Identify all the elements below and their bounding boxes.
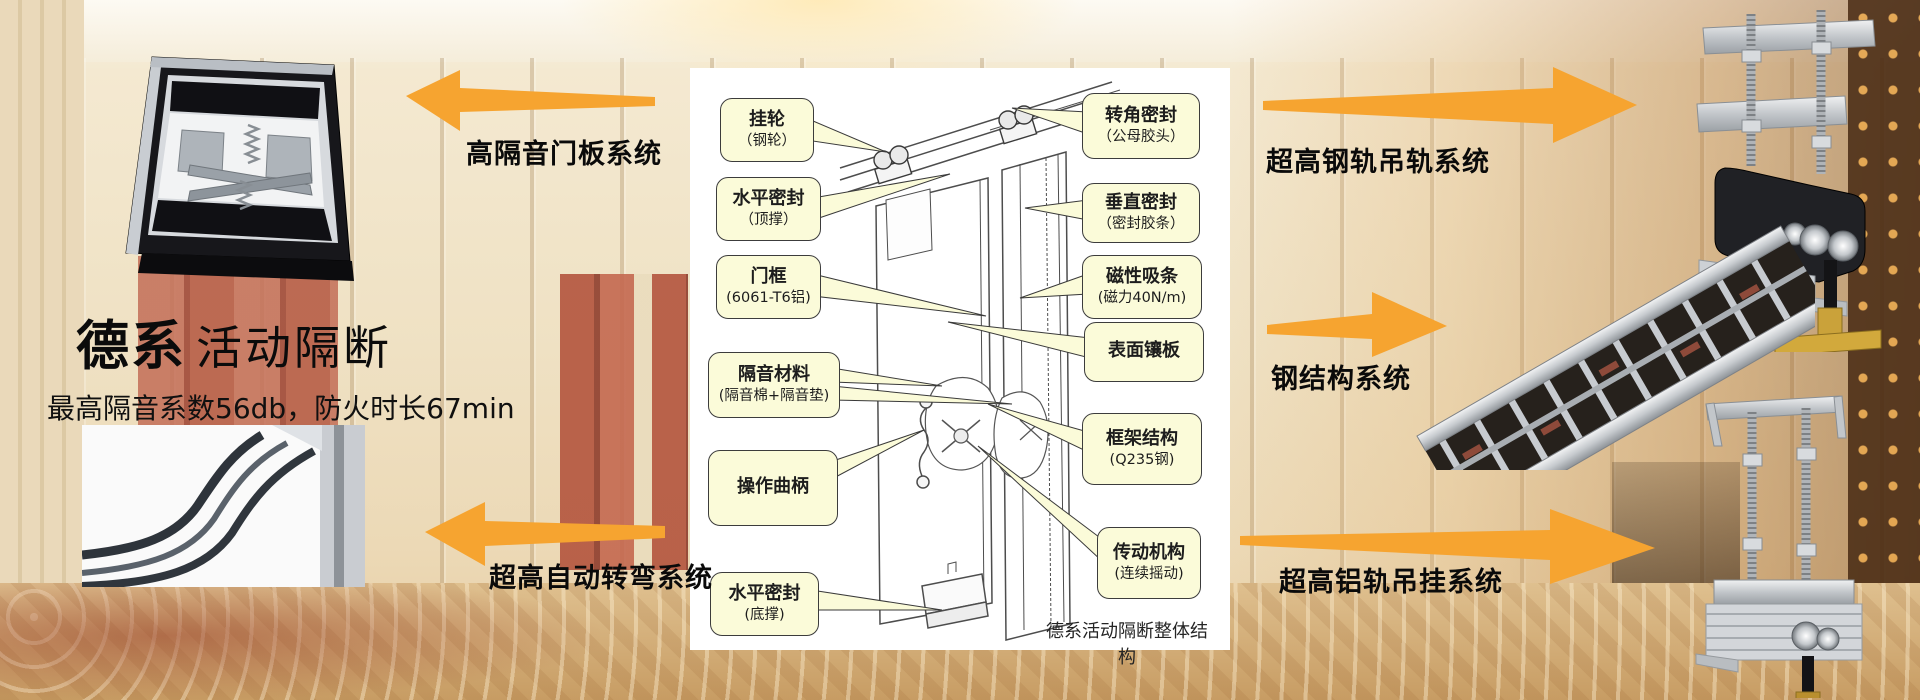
callout-text: 传动机构	[1113, 543, 1185, 564]
callout-text: 转角密封	[1105, 106, 1177, 127]
door-panel-mechanism-photo	[112, 35, 374, 283]
label-auto-turning-system: 超高自动转弯系统	[489, 556, 713, 595]
product-subtitle: 最高隔音系数56db，防火时长67min	[47, 387, 515, 427]
callout-text: （密封胶条）	[1098, 216, 1185, 233]
aluminum-extrusion	[1706, 604, 1862, 660]
callout-text: 水平密封	[729, 584, 801, 605]
callout-text: (底撑)	[744, 607, 784, 624]
curved-track-photo	[82, 425, 365, 587]
callout-text: 磁性吸条	[1106, 267, 1178, 288]
callout-vertical-seal: 垂直密封 （密封胶条）	[1082, 183, 1200, 243]
callout-door-frame: 门框 (6061-T6铝)	[716, 255, 821, 319]
callout-text: (磁力40N/m)	[1098, 290, 1187, 307]
callout-hanging-wheel: 挂轮 （钢轮）	[720, 98, 814, 162]
callout-text: (Q235钢)	[1110, 452, 1175, 469]
callout-text: （顶撑）	[740, 212, 798, 229]
label-steel-structure-system: 钢结构系统	[1271, 357, 1411, 396]
diagram-caption: 德系活动隔断整体结构	[1038, 617, 1216, 669]
callout-text: (连续摇动)	[1114, 566, 1183, 583]
label-door-panel-system: 高隔音门板系统	[466, 132, 662, 171]
callout-text: 门框	[751, 267, 787, 288]
callout-text: (6061-T6铝)	[726, 290, 811, 307]
title-bold: 德系	[76, 316, 186, 377]
callout-drive-mechanism: 传动机构 (连续摇动)	[1097, 527, 1201, 599]
callout-sound-insulation: 隔音材料 (隔音棉+隔音垫)	[708, 352, 840, 418]
callout-horizontal-seal-top: 水平密封 （顶撑）	[716, 177, 821, 241]
callout-text: 挂轮	[749, 110, 785, 131]
red-partition-panels-mid	[560, 274, 688, 570]
carpet-red-medallion	[0, 583, 600, 700]
callout-text: 垂直密封	[1105, 193, 1177, 214]
product-title: 德系活动隔断	[76, 304, 392, 380]
callout-text: （钢轮）	[738, 133, 796, 150]
structure-diagram-panel: 挂轮 （钢轮） 水平密封 （顶撑） 门框 (6061-T6铝) 隔音材料 (隔音…	[690, 68, 1230, 650]
callout-magnetic-strip: 磁性吸条 (磁力40N/m)	[1082, 255, 1202, 319]
callout-horizontal-seal-bottom: 水平密封 (底撑)	[710, 572, 819, 636]
partition-product-poster: 德系活动隔断 最高隔音系数56db，防火时长67min	[0, 0, 1920, 700]
label-steel-rail-system: 超高钢轨吊轨系统	[1266, 140, 1490, 179]
callout-frame-structure: 框架结构 (Q235钢)	[1082, 413, 1202, 485]
callout-text: 操作曲柄	[737, 477, 809, 498]
callout-text: 水平密封	[733, 189, 805, 210]
callout-text: 表面镶板	[1108, 341, 1180, 362]
callout-text: 框架结构	[1106, 429, 1178, 450]
callout-text: （公母胶头）	[1098, 129, 1185, 146]
title-light: 活动隔断	[196, 321, 392, 375]
callout-operating-crank: 操作曲柄	[708, 450, 838, 526]
aluminum-track-hanger-photo	[1678, 388, 1885, 698]
label-aluminum-rail-system: 超高铝轨吊挂系统	[1279, 560, 1503, 599]
callout-corner-seal: 转角密封 （公母胶头）	[1082, 93, 1200, 159]
callout-text: 隔音材料	[738, 365, 810, 386]
callout-surface-panel: 表面镶板	[1084, 322, 1204, 382]
callout-text: (隔音棉+隔音垫)	[719, 388, 829, 405]
